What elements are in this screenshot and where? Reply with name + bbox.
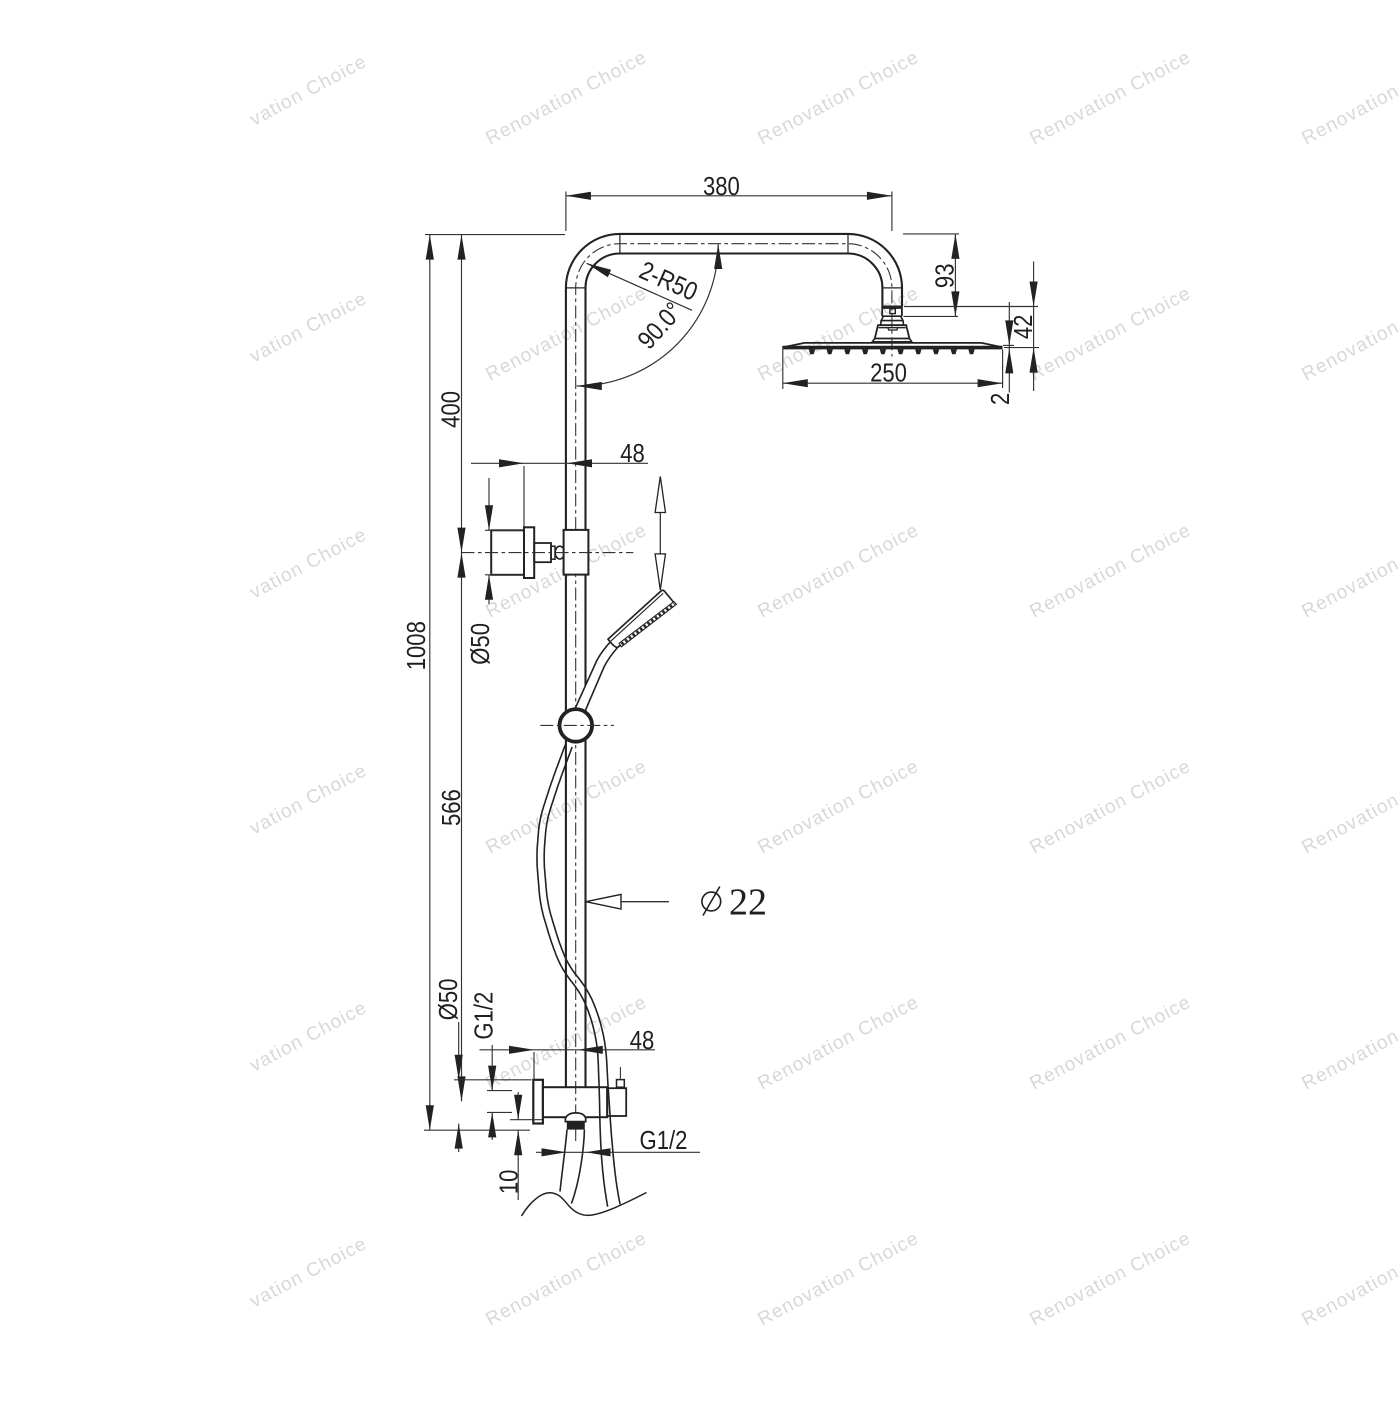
svg-text:Ø50: Ø50: [434, 979, 463, 1021]
svg-text:48: 48: [630, 1026, 655, 1055]
svg-text:400: 400: [437, 391, 466, 428]
svg-text:1008: 1008: [402, 621, 431, 670]
svg-text:22: 22: [729, 882, 767, 924]
svg-text:10: 10: [495, 1170, 524, 1195]
svg-text:380: 380: [703, 172, 740, 201]
svg-text:Ø50: Ø50: [467, 623, 496, 665]
svg-text:566: 566: [438, 789, 467, 826]
svg-text:G1/2: G1/2: [640, 1126, 688, 1155]
svg-text:42: 42: [1009, 315, 1038, 340]
svg-text:250: 250: [870, 359, 907, 388]
svg-text:48: 48: [620, 439, 645, 468]
svg-text:93: 93: [931, 264, 960, 289]
svg-text:G1/2: G1/2: [470, 992, 499, 1040]
svg-text:2: 2: [986, 393, 1015, 405]
